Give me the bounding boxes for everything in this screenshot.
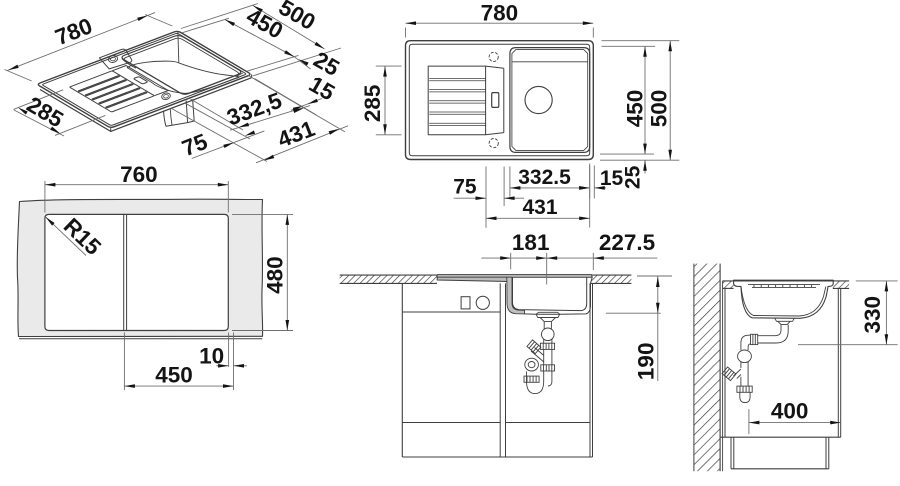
svg-text:780: 780 — [481, 1, 519, 26]
svg-text:332.5: 332.5 — [518, 166, 571, 189]
svg-text:285: 285 — [360, 85, 385, 123]
svg-text:400: 400 — [771, 399, 809, 424]
svg-text:500: 500 — [647, 90, 672, 128]
svg-text:25: 25 — [622, 165, 645, 189]
svg-text:450: 450 — [155, 362, 193, 387]
svg-text:450: 450 — [623, 90, 648, 128]
svg-text:75: 75 — [453, 176, 477, 199]
svg-text:181: 181 — [512, 230, 550, 255]
svg-text:480: 480 — [262, 256, 287, 294]
svg-text:190: 190 — [634, 343, 659, 381]
svg-text:10: 10 — [199, 343, 224, 368]
svg-text:227.5: 227.5 — [599, 230, 655, 255]
svg-text:15: 15 — [600, 167, 624, 190]
svg-text:431: 431 — [522, 196, 557, 219]
svg-text:760: 760 — [120, 162, 158, 187]
svg-text:330: 330 — [860, 296, 885, 334]
